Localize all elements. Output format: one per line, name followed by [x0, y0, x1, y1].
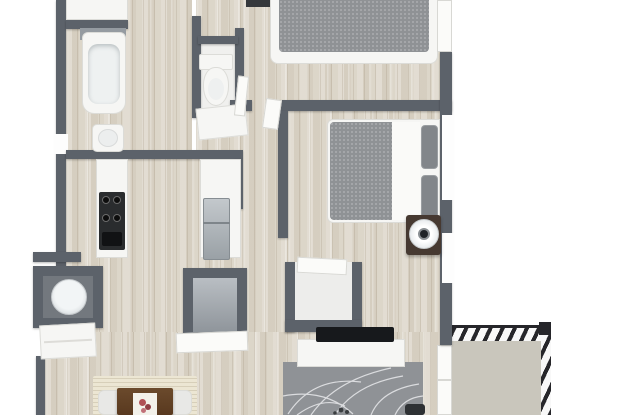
bed-2-sheet — [392, 122, 420, 220]
dining-chair-right — [172, 390, 192, 415]
refrigerator-door-line — [203, 222, 230, 224]
stove-burner-1 — [102, 196, 110, 204]
bathroom-sink-bowl — [98, 129, 118, 147]
stove-burner-3 — [102, 214, 110, 222]
washer — [51, 279, 87, 315]
closet-b-door — [297, 257, 348, 276]
bed-2-pillow-bottom — [421, 175, 438, 219]
floral-rug-pattern — [283, 362, 423, 415]
media-console — [297, 339, 405, 367]
window-right-wall-lower — [442, 233, 454, 283]
wall-bedroom2-left — [278, 111, 288, 238]
bed-2-pillow-top — [421, 125, 438, 169]
bathtub-basin — [88, 44, 120, 104]
bedroom-1-closet-door — [437, 0, 452, 52]
rug-cushion — [405, 404, 425, 415]
wall-bedroom-divider-right — [278, 100, 452, 111]
wall-bottom-left — [36, 356, 45, 415]
stove-control-strip — [102, 232, 122, 246]
window-right-wall-upper — [442, 115, 454, 200]
toilet-seat-inner — [208, 78, 224, 100]
closet-a-doors — [176, 331, 249, 354]
closet-a-interior — [193, 278, 237, 332]
floral-area-rug — [283, 362, 423, 415]
bathroom-vanity — [66, 0, 128, 20]
balcony-railing-top — [452, 325, 549, 341]
laundry-wall-top-stub — [33, 252, 81, 262]
balcony-railing-right — [541, 325, 551, 415]
balcony-railing-corner-post — [539, 322, 551, 335]
wall-wc-top — [198, 36, 238, 44]
dining-chair-left — [98, 390, 118, 415]
stove-burner-4 — [113, 214, 121, 222]
bed-2-blanket — [330, 122, 392, 220]
fan-center-hub — [418, 228, 430, 240]
balcony-door-divider — [437, 379, 452, 381]
floor-plan-canvas — [0, 0, 640, 415]
tv-soundbar — [316, 327, 394, 342]
wall-kitchen-top — [66, 150, 243, 159]
flower-centerpiece-3 — [141, 408, 146, 413]
refrigerator — [203, 198, 230, 260]
stove-burner-2 — [113, 196, 121, 204]
balcony-floor — [452, 341, 545, 415]
bed-1-blanket — [279, 0, 429, 52]
